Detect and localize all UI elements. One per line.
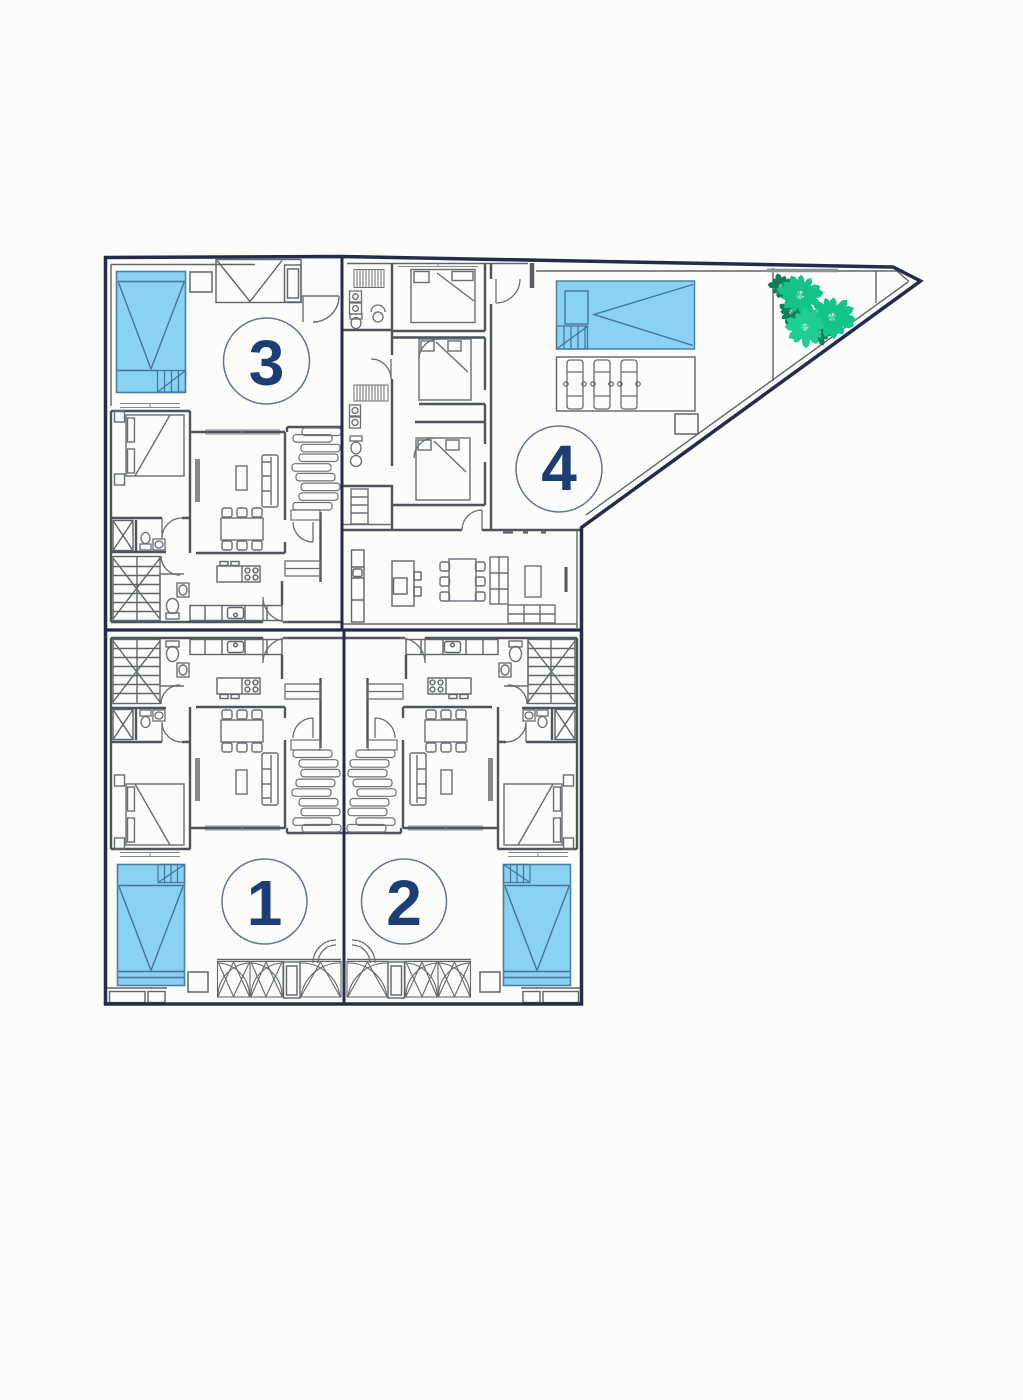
svg-text:4: 4 — [541, 432, 577, 504]
svg-text:3: 3 — [249, 327, 285, 399]
svg-text:1: 1 — [247, 867, 283, 939]
svg-text:2: 2 — [386, 867, 422, 939]
